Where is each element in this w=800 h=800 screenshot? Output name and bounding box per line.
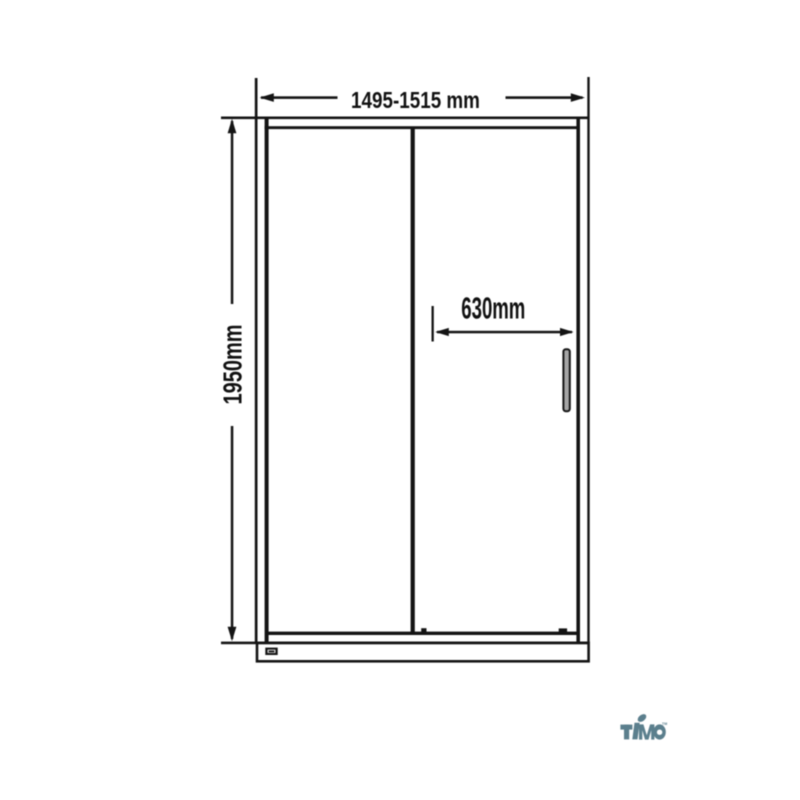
svg-text:1495-1515 mm: 1495-1515 mm bbox=[351, 89, 480, 114]
svg-text:1950mm: 1950mm bbox=[218, 324, 247, 404]
svg-text:630mm: 630mm bbox=[461, 292, 525, 326]
svg-text:TM: TM bbox=[662, 722, 667, 726]
